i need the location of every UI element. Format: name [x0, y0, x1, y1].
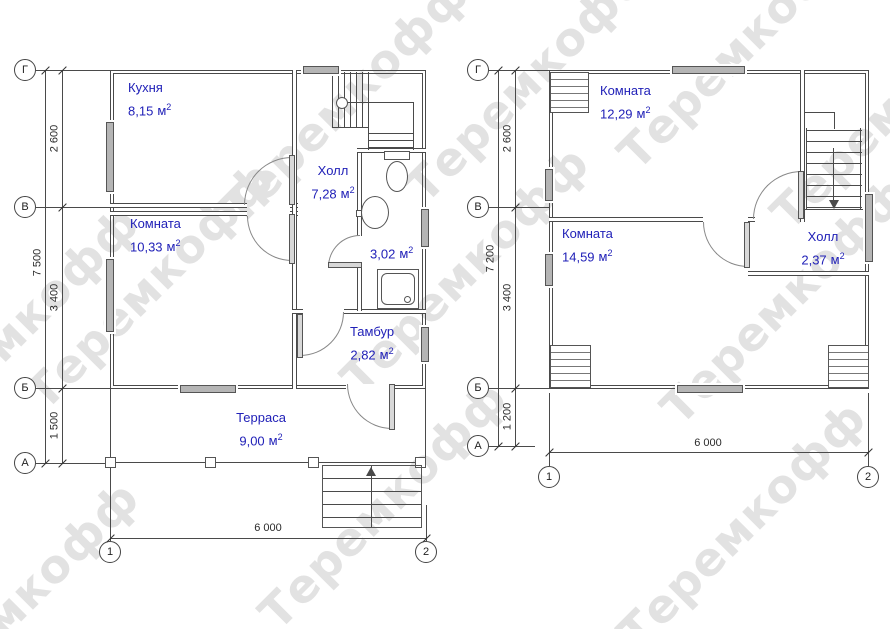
dim-total-horizontal-floor1: 6 000 [238, 522, 298, 535]
area-unit: м [380, 347, 389, 362]
room-area: 2,37м2 [793, 249, 853, 267]
stair-tread [806, 163, 862, 164]
room-area: 7,28м2 [303, 183, 363, 201]
room-label-hall: Холл 7,28м2 [303, 163, 363, 201]
area-unit: м [157, 103, 166, 118]
stair-tread [806, 196, 862, 197]
stair-arrow-shaft [833, 148, 834, 202]
watermark: Теремкофф [0, 470, 150, 629]
direction-arrow-up [366, 467, 376, 476]
door-leaf [328, 262, 362, 268]
dim-segment: 2 600 [49, 109, 62, 169]
direction-arrow-down [829, 200, 839, 209]
window [865, 194, 873, 262]
area-value: 14,59 [562, 249, 595, 264]
window [545, 169, 553, 201]
sink-tap [356, 210, 362, 217]
watermark: Теремкофф [607, 390, 877, 629]
dim-segment: 1 200 [502, 387, 515, 447]
room-label-kitchen: Кухня 8,15м2 [128, 80, 171, 118]
area-sup: 2 [278, 432, 283, 442]
stair-landing [805, 112, 835, 113]
roof-hatch [828, 345, 869, 388]
room-area: 3,02м2 [370, 243, 413, 261]
window [421, 327, 429, 362]
stair-tread [368, 72, 369, 128]
stair-handrail [413, 102, 414, 150]
room-label-vestibule: Тамбур 2,82м2 [340, 324, 404, 362]
dim-total-horizontal-floor2: 6 000 [678, 437, 738, 450]
window [303, 66, 339, 74]
room-name: Комната [562, 226, 613, 241]
axis-row-v-floor1: В [14, 196, 36, 218]
window [421, 209, 429, 247]
stair-tread [369, 140, 413, 141]
shower-drain [404, 296, 411, 303]
interior-wall [549, 217, 703, 222]
roof-hatch [550, 72, 589, 113]
terrace-edge [425, 389, 426, 463]
area-sup: 2 [607, 248, 612, 258]
room-area: 9,00м2 [226, 430, 296, 448]
area-sup: 2 [645, 105, 650, 115]
roof-hatch [550, 345, 591, 388]
door-leaf [798, 171, 804, 219]
stair-rail [860, 128, 861, 210]
newel-post [336, 97, 348, 109]
area-value: 7,28 [311, 186, 336, 201]
stair-landing [834, 112, 835, 129]
room-area: 14,59м2 [562, 246, 613, 264]
area-unit: м [269, 433, 278, 448]
area-value: 2,82 [350, 347, 375, 362]
room-label-terrace: Терраса 9,00м2 [226, 410, 296, 448]
dimension-line [515, 70, 516, 446]
extension-line [868, 393, 869, 466]
area-sup: 2 [175, 238, 180, 248]
sink [361, 196, 389, 229]
dimension-line [110, 538, 426, 539]
axis-line [36, 207, 110, 208]
terrace-post [205, 457, 216, 468]
stair-rail [806, 128, 807, 210]
axis-line [36, 70, 110, 71]
dim-total-vertical-floor1: 7 500 [32, 233, 45, 293]
area-unit: м [399, 246, 408, 261]
door-leaf [289, 214, 295, 264]
window [672, 66, 745, 74]
interior-wall [748, 271, 869, 276]
room-name: Комната [600, 83, 651, 98]
room-area: 8,15м2 [128, 100, 171, 118]
area-value: 2,37 [801, 252, 826, 267]
axis-row-g-floor1: Г [14, 59, 36, 81]
room-name: Холл [303, 163, 363, 178]
stair-tread [806, 185, 862, 186]
axis-row-g-floor2: Г [467, 59, 489, 81]
stair-tread [356, 72, 357, 128]
area-sup: 2 [389, 346, 394, 356]
dimension-line [498, 70, 499, 446]
room-area: 10,33м2 [130, 236, 181, 254]
axis-row-v-floor2: В [467, 196, 489, 218]
axis-line [36, 463, 110, 464]
window [677, 385, 743, 393]
room-area: 2,82м2 [340, 344, 404, 362]
window [106, 122, 114, 192]
area-unit: м [831, 252, 840, 267]
terrace-edge [110, 389, 111, 463]
axis-col-2-floor1: 2 [415, 541, 437, 563]
axis-line [36, 388, 110, 389]
axis-row-b-floor2: Б [467, 377, 489, 399]
room-name: Терраса [226, 410, 296, 425]
dimension-line [45, 70, 46, 463]
axis-col-2-floor2: 2 [857, 466, 879, 488]
toilet-tank [384, 151, 410, 160]
dim-segment: 2 600 [502, 109, 515, 169]
floor-plan-canvas: Теремкофф Теремкофф Теремкофф Теремкофф … [0, 0, 890, 629]
axis-col-1-floor1: 1 [99, 541, 121, 563]
stair-edge [332, 127, 369, 128]
area-sup: 2 [350, 185, 355, 195]
stair-tread [369, 147, 413, 148]
stair-edge [332, 72, 333, 128]
interior-wall [110, 203, 247, 208]
axis-row-a-floor1: А [14, 452, 36, 474]
terrace-post [105, 457, 116, 468]
door-leaf [297, 314, 303, 358]
axis-row-a-floor2: А [467, 435, 489, 457]
window [180, 385, 236, 393]
area-sup: 2 [166, 102, 171, 112]
stair-tread [806, 141, 862, 142]
area-value: 8,15 [128, 103, 153, 118]
dim-segment: 3 400 [502, 268, 515, 328]
stair-edge [368, 127, 369, 150]
dimension-line [62, 70, 63, 463]
dim-segment: 3 400 [49, 268, 62, 328]
area-value: 9,00 [239, 433, 264, 448]
toilet [386, 161, 408, 192]
room-name: Тамбур [340, 324, 404, 339]
stair-tread [369, 133, 413, 134]
axis-col-1-floor2: 1 [538, 466, 560, 488]
stair-tread [806, 174, 862, 175]
extension-line [549, 393, 550, 466]
room-name: Холл [793, 229, 853, 244]
area-value: 12,29 [600, 106, 633, 121]
dim-segment: 1 500 [49, 396, 62, 456]
area-sup: 2 [408, 245, 413, 255]
terrace-post [308, 457, 319, 468]
stair-tread [362, 72, 363, 128]
door-leaf [289, 155, 295, 205]
door-leaf [389, 384, 395, 430]
area-unit: м [341, 186, 350, 201]
area-value: 10,33 [130, 239, 163, 254]
room-area: 12,29м2 [600, 103, 651, 121]
stair-edge [805, 209, 869, 210]
room-label-room-top: Комната 12,29м2 [600, 83, 651, 121]
room-label-bathroom: 3,02м2 [370, 243, 413, 261]
area-sup: 2 [840, 251, 845, 261]
room-label-room-bottom: Комната 14,59м2 [562, 226, 613, 264]
door-arc [347, 384, 392, 429]
room-label-room: Комната 10,33м2 [130, 216, 181, 254]
window [545, 254, 553, 286]
window [106, 259, 114, 332]
stair-tread [806, 152, 862, 153]
door-leaf [744, 222, 750, 268]
room-name: Комната [130, 216, 181, 231]
axis-row-b-floor1: Б [14, 377, 36, 399]
dim-total-vertical-floor2: 7 200 [485, 229, 498, 289]
stair-handrail [347, 102, 414, 103]
area-value: 3,02 [370, 246, 395, 261]
extension-line [110, 467, 111, 541]
terrace-edge [110, 462, 426, 463]
room-label-hall2: Холл 2,37м2 [793, 229, 853, 267]
room-name: Кухня [128, 80, 171, 95]
interior-wall [357, 266, 362, 311]
stair-tread [350, 72, 351, 128]
stair-tread [806, 130, 862, 131]
dimension-line [549, 452, 869, 453]
